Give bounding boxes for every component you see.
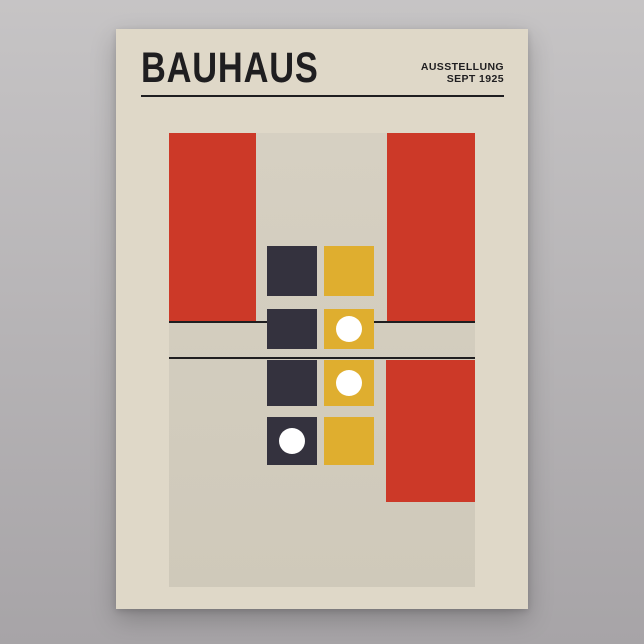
divider-upper-right: [374, 321, 475, 323]
divider-upper-left: [169, 321, 268, 323]
square-navy-row3: [267, 360, 317, 406]
red-block-right-lower: [386, 360, 475, 502]
square-yellow-row3: [324, 360, 374, 406]
red-block-left: [169, 133, 256, 321]
divider-lower: [169, 357, 475, 359]
white-dot: [336, 370, 362, 396]
white-dot: [279, 428, 305, 454]
bauhaus-poster: BAUHAUS AUSSTELLUNG SEPT 1925: [116, 29, 528, 609]
square-navy-row4: [267, 417, 317, 465]
square-yellow-row2: [324, 309, 374, 349]
header-rule: [141, 95, 504, 97]
square-navy-row2: [267, 309, 317, 349]
exhibition-date: SEPT 1925: [421, 74, 504, 86]
square-yellow-row4: [324, 417, 374, 465]
poster-title: BAUHAUS: [141, 47, 319, 90]
square-navy-row1: [267, 246, 317, 296]
white-dot: [336, 316, 362, 342]
backdrop-wall: BAUHAUS AUSSTELLUNG SEPT 1925: [0, 0, 644, 644]
exhibition-info: AUSSTELLUNG SEPT 1925: [421, 62, 504, 85]
exhibition-label: AUSSTELLUNG: [421, 62, 504, 74]
red-block-right-upper: [387, 133, 475, 321]
square-yellow-row1: [324, 246, 374, 296]
